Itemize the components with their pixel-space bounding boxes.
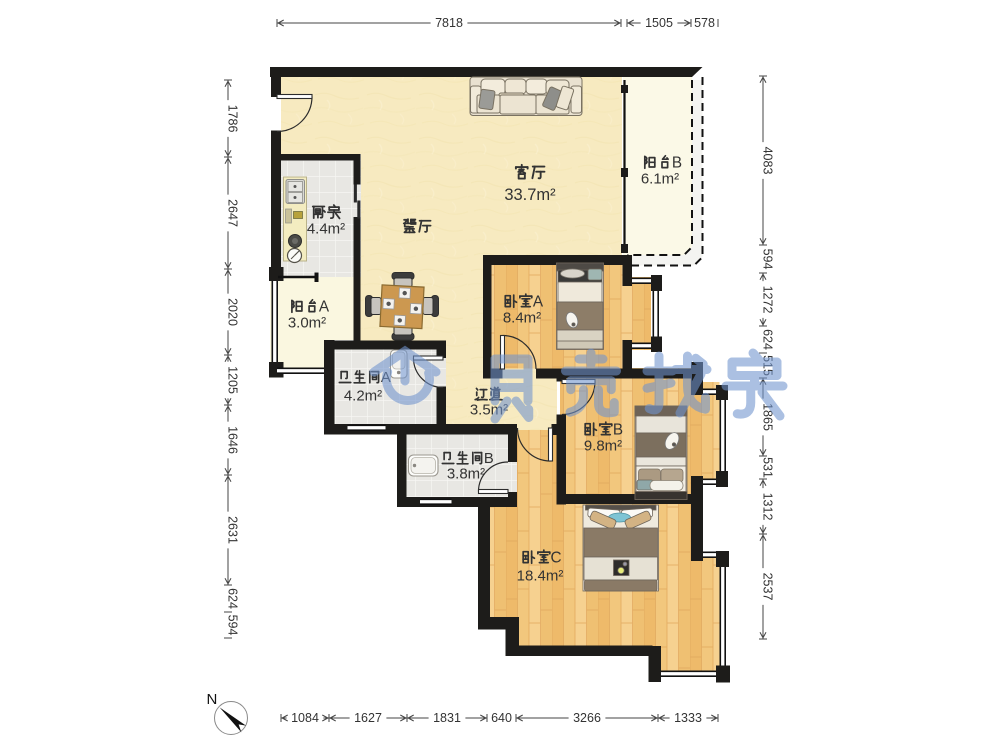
svg-text:4.4m²: 4.4m² — [307, 220, 345, 237]
svg-text:594: 594 — [226, 615, 240, 636]
svg-text:A: A — [319, 298, 330, 315]
svg-text:624: 624 — [761, 329, 775, 350]
svg-text:578: 578 — [694, 16, 715, 30]
svg-text:A: A — [533, 293, 544, 310]
svg-text:6.1m²: 6.1m² — [641, 170, 679, 187]
svg-text:4083: 4083 — [761, 147, 775, 175]
svg-text:4.2m²: 4.2m² — [344, 387, 382, 404]
svg-text:2631: 2631 — [226, 516, 240, 544]
svg-text:2020: 2020 — [226, 298, 240, 326]
svg-text:1333: 1333 — [674, 711, 702, 725]
svg-text:9.8m²: 9.8m² — [584, 437, 622, 454]
svg-text:2647: 2647 — [226, 199, 240, 227]
svg-text:33.7m²: 33.7m² — [504, 186, 556, 204]
svg-text:3.8m²: 3.8m² — [447, 465, 485, 482]
svg-text:1312: 1312 — [761, 493, 775, 521]
svg-text:1646: 1646 — [226, 426, 240, 454]
svg-text:2537: 2537 — [761, 573, 775, 601]
svg-text:8.4m²: 8.4m² — [503, 309, 541, 326]
svg-text:1084: 1084 — [291, 711, 319, 725]
svg-text:1505: 1505 — [645, 16, 673, 30]
svg-text:1272: 1272 — [761, 286, 775, 314]
svg-text:1831: 1831 — [433, 711, 461, 725]
svg-text:B: B — [613, 421, 623, 438]
svg-text:531: 531 — [761, 457, 775, 478]
svg-text:N: N — [207, 691, 218, 708]
svg-text:B: B — [672, 154, 682, 171]
svg-text:3.0m²: 3.0m² — [288, 314, 326, 331]
svg-text:3266: 3266 — [573, 711, 601, 725]
svg-text:1786: 1786 — [226, 105, 240, 133]
svg-text:1205: 1205 — [226, 366, 240, 394]
svg-text:594: 594 — [761, 249, 775, 270]
svg-text:18.4m²: 18.4m² — [517, 567, 564, 584]
svg-text:624: 624 — [226, 588, 240, 609]
svg-text:B: B — [484, 451, 494, 467]
svg-text:1627: 1627 — [354, 711, 382, 725]
svg-text:640: 640 — [491, 711, 512, 725]
svg-text:7818: 7818 — [435, 16, 463, 30]
svg-text:C: C — [550, 549, 561, 566]
